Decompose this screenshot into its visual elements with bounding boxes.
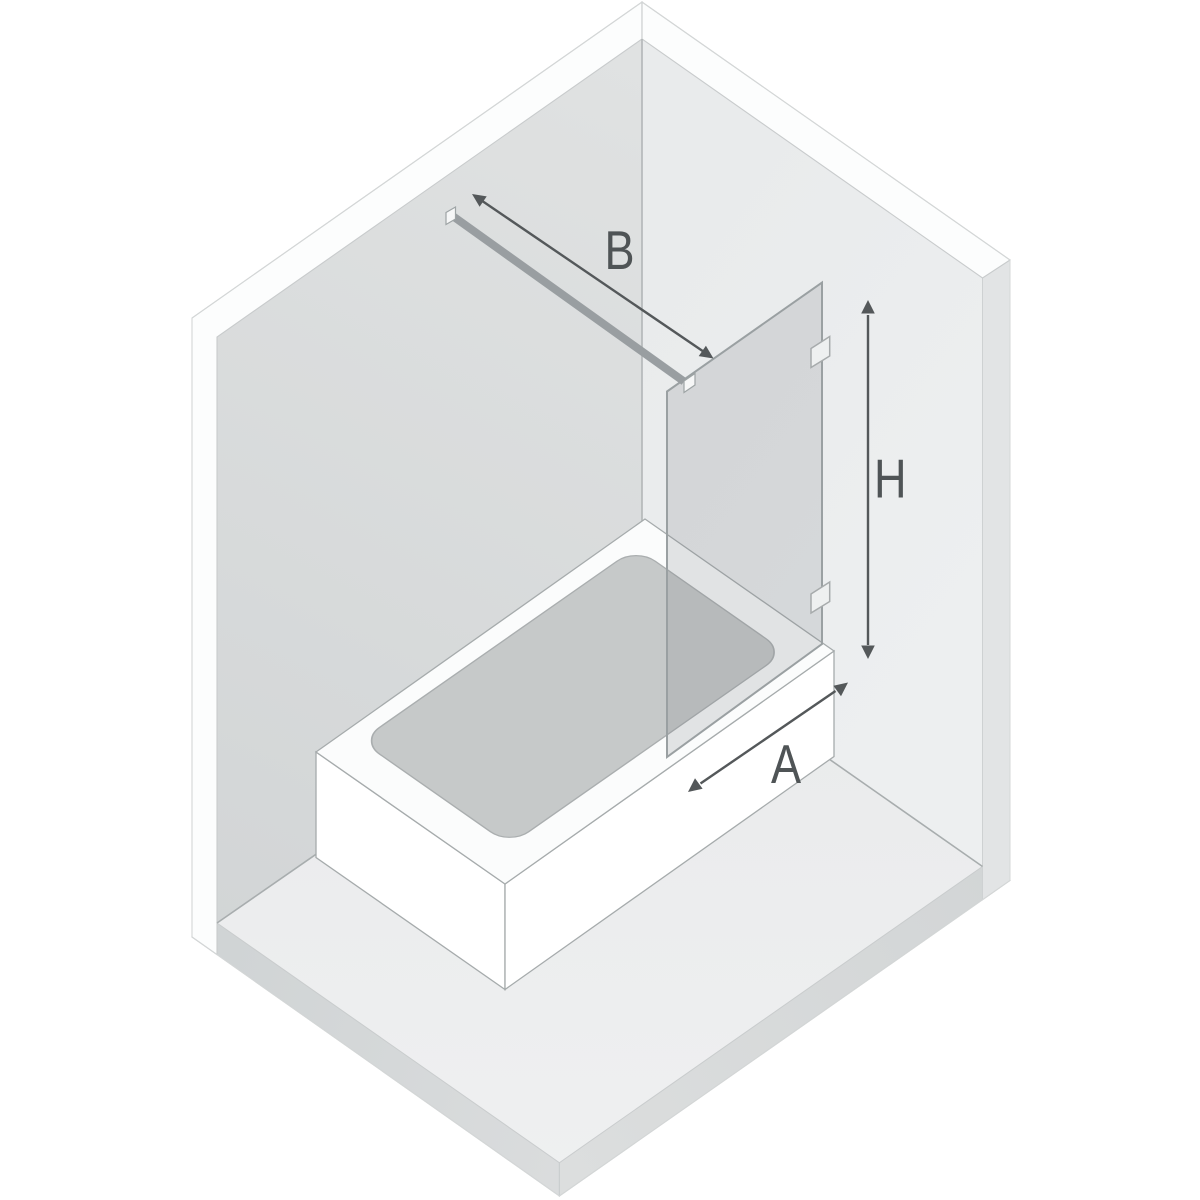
svg-text:A: A — [771, 733, 801, 795]
svg-text:B: B — [605, 219, 635, 281]
svg-text:H: H — [874, 447, 907, 509]
